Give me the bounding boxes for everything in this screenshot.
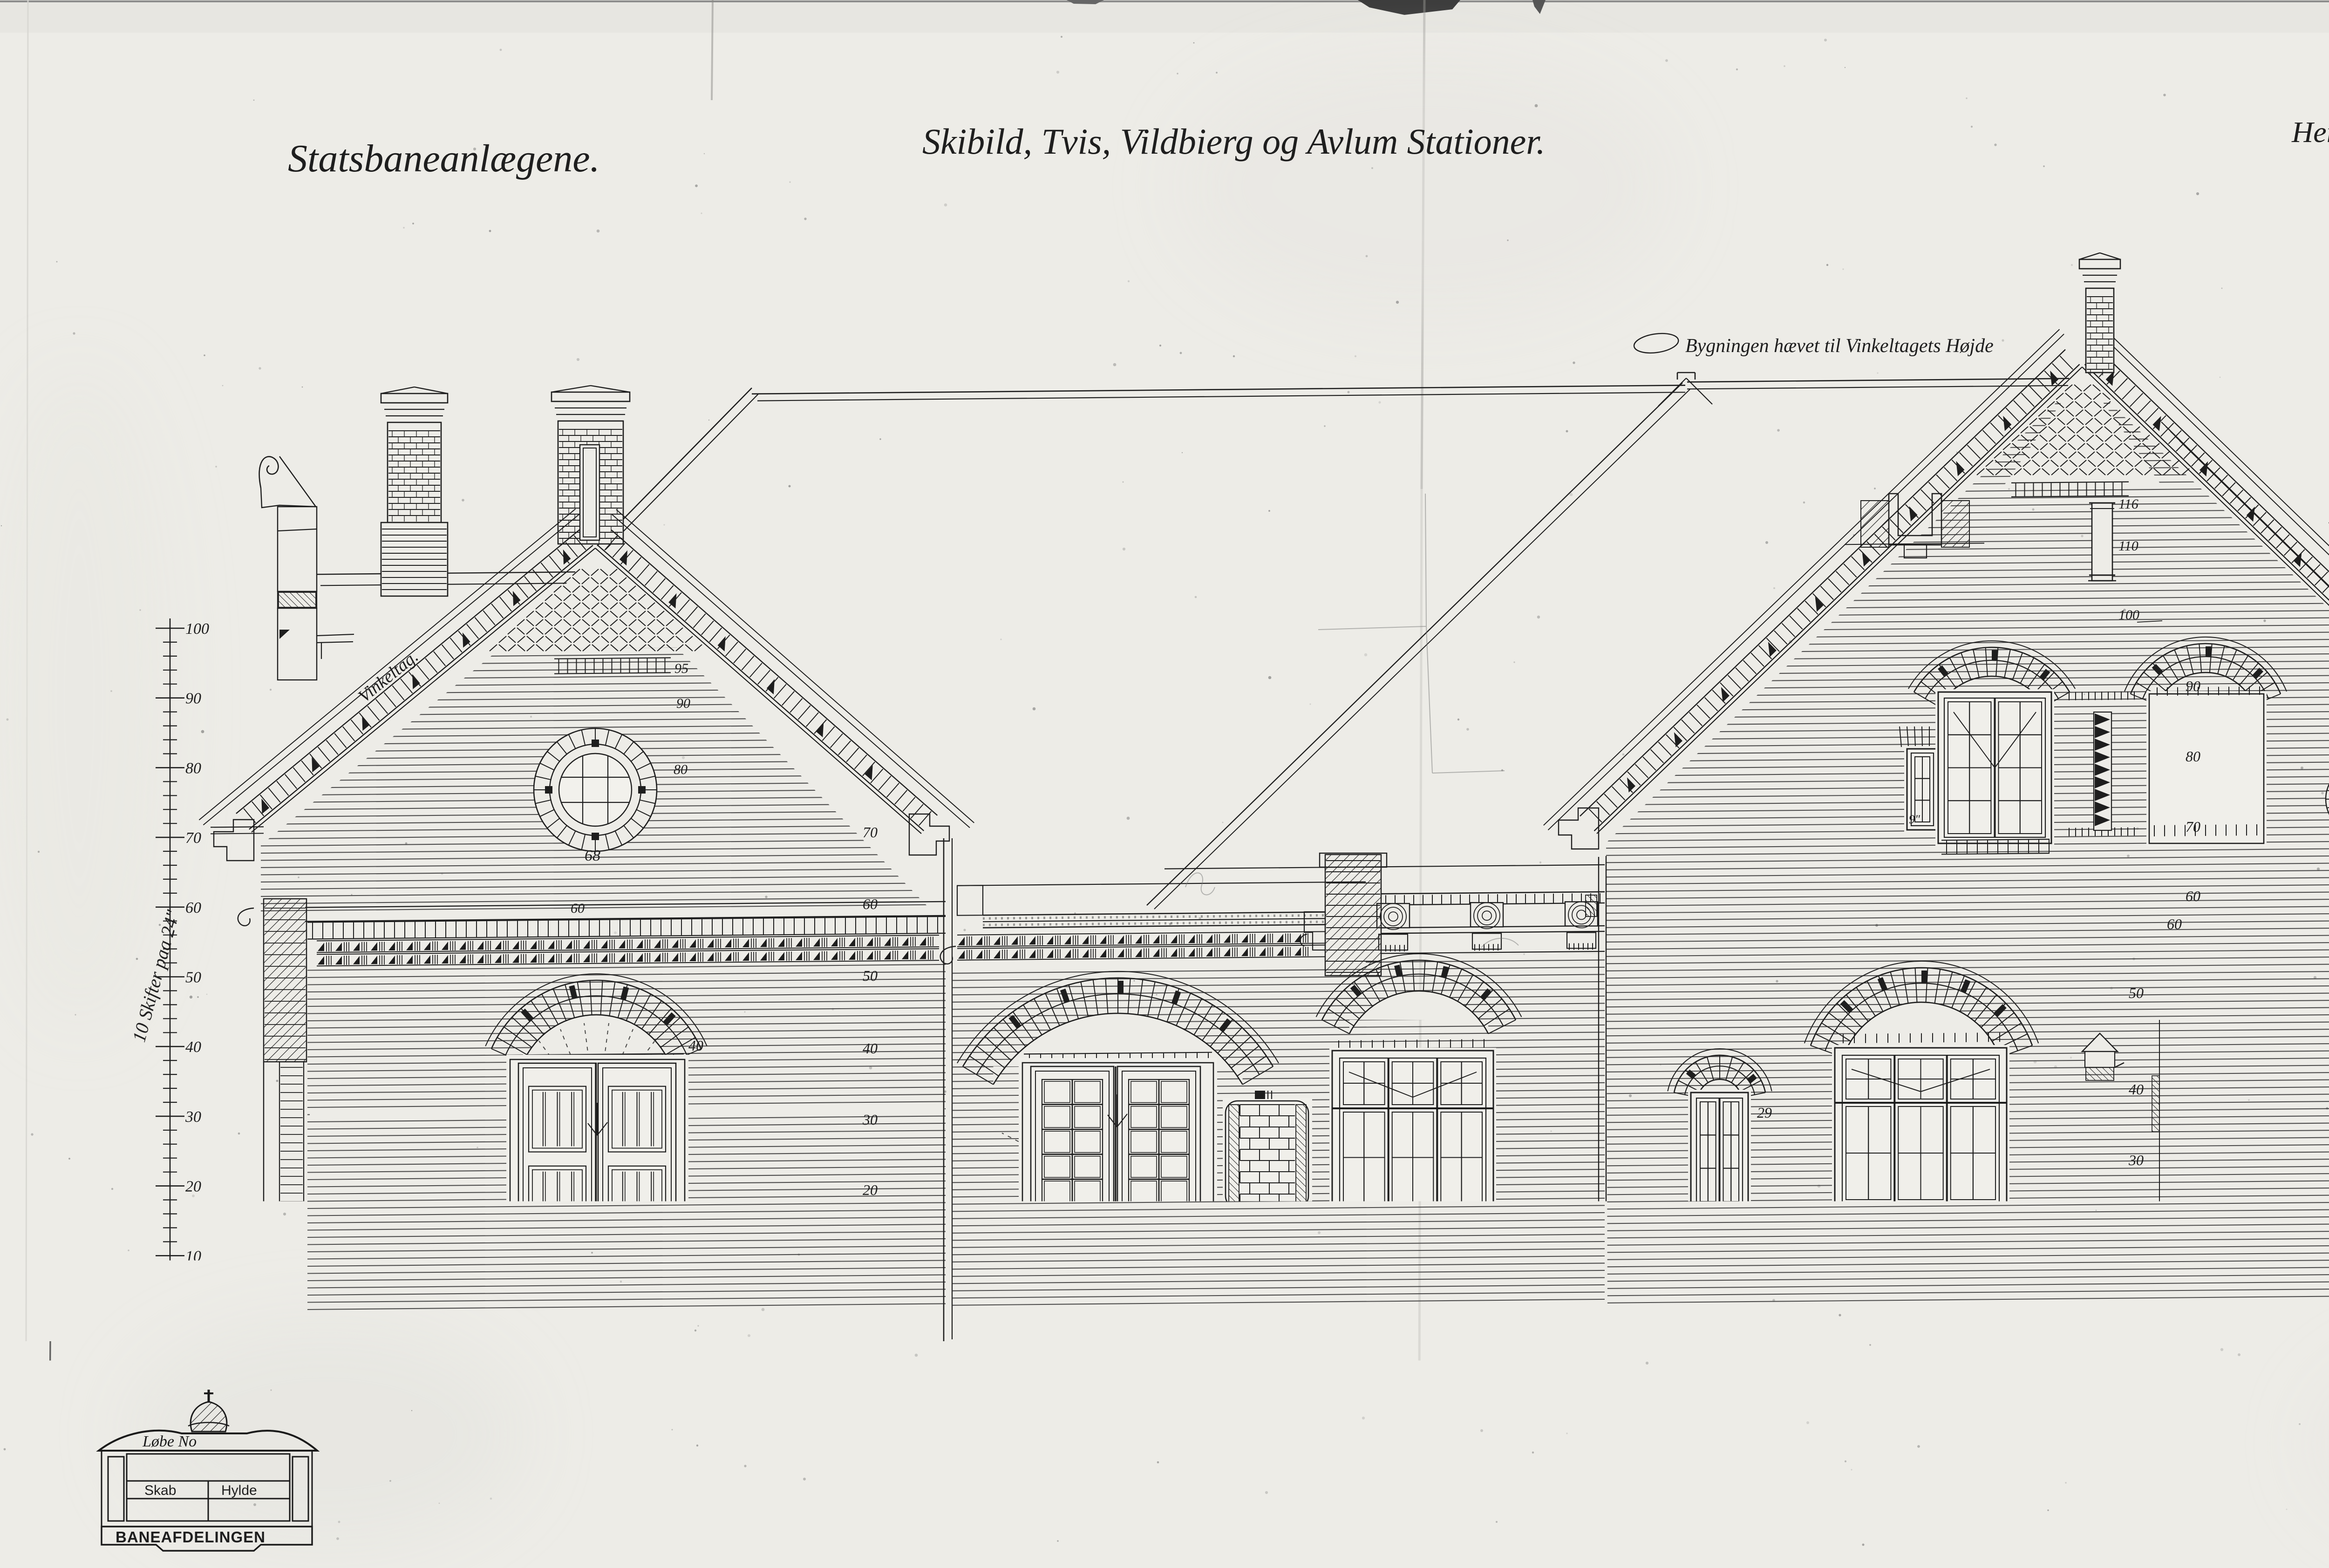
svg-text:BANEAFDELINGEN: BANEAFDELINGEN (116, 1528, 266, 1546)
svg-text:Hylde: Hylde (221, 1483, 257, 1498)
svg-text:9: 9 (1583, 1448, 1592, 1469)
svg-text:8: 8 (1514, 1449, 1523, 1470)
svg-text:": " (848, 1470, 854, 1487)
svg-text:100: 100 (185, 620, 209, 638)
svg-text:50: 50 (185, 969, 201, 986)
svg-text:70: 70 (2186, 818, 2200, 835)
svg-text:24: 24 (878, 1468, 894, 1487)
svg-text:40: 40 (863, 1040, 878, 1057)
svg-text:Januar 1904.: Januar 1904. (2327, 1404, 2329, 1441)
svg-text:95: 95 (674, 661, 688, 676)
svg-text:20: 20 (185, 1178, 201, 1195)
svg-text:10: 10 (1651, 1448, 1670, 1469)
svg-text:60: 60 (863, 896, 878, 912)
svg-text:40: 40 (2129, 1081, 2144, 1098)
svg-text:30: 30 (2128, 1152, 2144, 1168)
svg-text:60: 60 (2167, 916, 2182, 932)
svg-text:10 Alen: 10 Alen (1676, 1439, 1739, 1462)
svg-text:30: 30 (185, 1108, 201, 1126)
svg-text:1: 1 (2129, 1301, 2136, 1317)
svg-text:Bygningen hævet til Vinkeltage: Bygningen hævet til Vinkeltagets Højde (1685, 335, 1994, 357)
svg-text:68: 68 (585, 847, 600, 864)
svg-text:30: 30 (862, 1111, 878, 1128)
svg-text:60: 60 (571, 901, 585, 916)
svg-text:70: 70 (185, 829, 201, 847)
svg-text:Skibild, Tvis, Vildbierg og Av: Skibild, Tvis, Vildbierg og Avlum Statio… (922, 121, 1546, 162)
svg-text:60: 60 (2186, 888, 2200, 904)
svg-text:7: 7 (1445, 1450, 1456, 1471)
svg-text:80: 80 (674, 762, 688, 777)
svg-text:40: 40 (688, 1037, 703, 1054)
svg-text:70: 70 (863, 824, 878, 841)
svg-text:1: 1 (1033, 1453, 1042, 1474)
svg-text:0: 0 (197, 1318, 204, 1333)
svg-text:90: 90 (676, 696, 690, 711)
svg-text:100: 100 (2118, 607, 2139, 623)
svg-text:10: 10 (185, 1248, 201, 1265)
svg-text:110: 110 (2118, 538, 2138, 554)
svg-text:80: 80 (185, 760, 201, 777)
svg-text:0: 0 (956, 1467, 964, 1486)
svg-text:20: 20 (2129, 1221, 2144, 1237)
svg-text:60: 60 (185, 899, 201, 916)
svg-text:4: 4 (1239, 1452, 1248, 1473)
svg-text:Skab: Skab (144, 1483, 176, 1498)
svg-text:80: 80 (2186, 748, 2200, 765)
svg-text:20: 20 (863, 1181, 878, 1198)
svg-text:6: 6 (1376, 1451, 1386, 1472)
svg-text:90: 90 (2186, 678, 2200, 694)
svg-text:5: 5 (1308, 1451, 1317, 1472)
svg-text:1" pr 1 Alen: 1" pr 1 Alen (1228, 1399, 1351, 1427)
svg-text:Løbe No: Løbe No (142, 1433, 197, 1450)
svg-text:40: 40 (185, 1039, 201, 1056)
svg-text:2: 2 (1102, 1453, 1111, 1474)
svg-text:29: 29 (1757, 1104, 1772, 1121)
svg-text:3: 3 (1170, 1453, 1180, 1473)
svg-text:Statsbaneanlægene.: Statsbaneanlægene. (288, 137, 600, 180)
svg-text:Herning-Holstebro Banen.: Herning-Holstebro Banen. (2291, 115, 2329, 149)
svg-text:6: 6 (936, 1467, 945, 1486)
svg-text:18: 18 (897, 1468, 914, 1487)
svg-text:9": 9" (1909, 813, 1920, 826)
svg-text:116: 116 (2118, 496, 2138, 512)
svg-text:90: 90 (185, 690, 201, 707)
svg-text:12: 12 (917, 1467, 933, 1486)
svg-text:50: 50 (2129, 984, 2144, 1001)
svg-text:10: 10 (2129, 1284, 2144, 1301)
svg-text:10: 10 (863, 1243, 878, 1260)
svg-text:1: 1 (180, 1311, 187, 1327)
svg-text:50: 50 (863, 967, 878, 984)
